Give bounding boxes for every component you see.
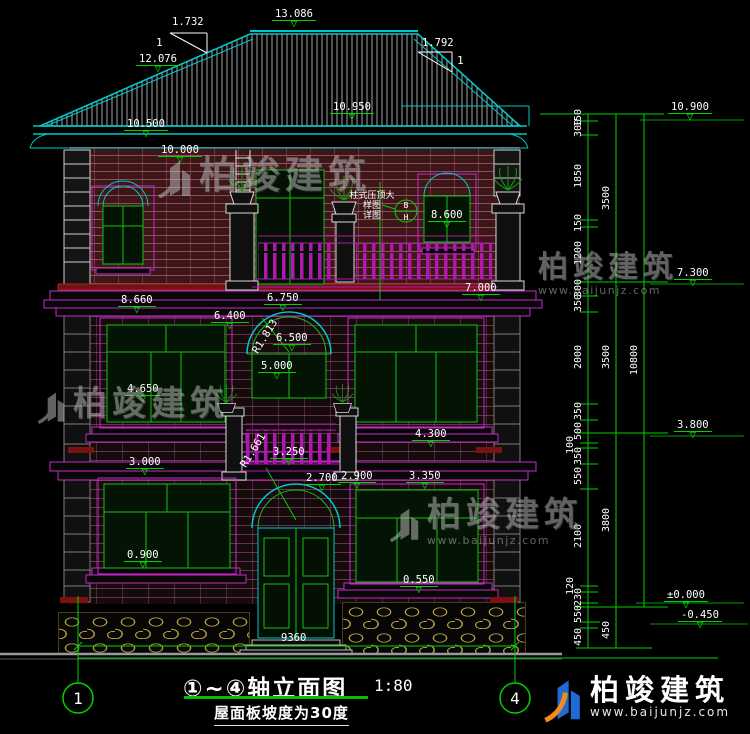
roof-slope-note: 屋面板坡度为30度 [214,702,349,726]
elevation-triangle-icon: ▽ [689,279,696,286]
elevation-triangle-icon: ▽ [139,561,146,568]
elevation-label: 8.660▽ [118,294,156,313]
elevation-triangle-icon: ▽ [285,458,292,465]
elevation-label: 10.950▽ [330,101,374,120]
elevation-label: 13.086▽ [272,8,316,27]
callout-sub: 详图 [348,211,396,221]
slope-ratio-left: 1 [156,36,163,49]
elevation-label: 2.700▽ [303,472,341,491]
elevation-triangle-icon: ▽ [683,601,690,608]
brand-footer: 柏竣建筑 www.baijunjz.com [542,672,730,722]
elevation-triangle-icon: ▽ [415,586,422,593]
svg-text:2000: 2000 [573,345,584,369]
elevation-label: 2.900▽ [338,470,376,489]
elevation-triangle-icon: ▽ [226,322,233,329]
slope-value-left: 1.732 [172,16,204,28]
elevation-label: 10.500▽ [124,118,168,137]
svg-text:450: 450 [573,628,584,646]
svg-text:550: 550 [573,605,584,623]
watermark: 柏竣建筑 [156,154,371,198]
watermark-logo-icon [156,154,192,198]
svg-text:10800: 10800 [629,345,640,375]
brand-name: 柏竣建筑 [590,675,730,705]
elevation-label: 3.000▽ [126,456,164,475]
elevation-label: 3.800▽ [674,419,712,438]
drawing-scale: 1:80 [374,676,413,695]
overall-width-dimension: 9360 [281,632,306,644]
svg-text:550: 550 [573,467,584,485]
elevation-label: 10.900▽ [668,101,712,120]
elevation-label: 12.076▽ [136,53,180,72]
callout-bottom-ref: H [404,213,409,222]
elevation-label: 3.250▽ [270,446,308,465]
slope-ratio-right: 1 [457,54,464,67]
elevation-label: 8.600▽ [428,209,466,228]
elevation-label: 7.300▽ [674,267,712,286]
svg-text:350: 350 [573,402,584,420]
watermark: 柏竣建筑 www.baijunjz.com [538,252,678,297]
elevation-label: 5.000▽ [258,360,296,379]
svg-text:350: 350 [573,447,584,465]
svg-text:1850: 1850 [573,164,584,188]
elevation-triangle-icon: ▽ [421,482,428,489]
elevation-label: -0.450▽ [678,609,722,628]
hip-roof [30,31,529,148]
axis-bubble-1: 1 [68,689,88,708]
elevation-triangle-icon: ▽ [291,20,298,27]
slope-value-right: 1.792 [422,37,454,49]
watermark-logo-icon [388,502,420,542]
elevation-label: 6.400▽ [211,310,249,329]
elevation-label: 6.500▽ [273,332,311,351]
watermark-logo-icon [36,386,66,424]
svg-text:450: 450 [601,621,612,639]
elevation-triangle-icon: ▽ [288,344,295,351]
brand-logo-icon [542,672,582,722]
cad-elevation-drawing: B H 150 300 1850 150 1 [0,0,750,734]
svg-text:350: 350 [573,294,584,312]
brand-url: www.baijunjz.com [590,705,730,719]
elevation-label: 6.750▽ [264,292,302,311]
svg-text:3800: 3800 [601,508,612,532]
elevation-label: 4.300▽ [412,428,450,447]
elevation-label: 7.000▽ [462,282,500,301]
elevation-triangle-icon: ▽ [133,306,140,313]
watermark: 柏竣建筑 www.baijunjz.com [388,498,583,547]
drawing-linework: B H 150 300 1850 150 1 [0,0,750,734]
elevation-triangle-icon: ▽ [443,221,450,228]
axis-bubble-4: 4 [505,689,525,708]
elevation-triangle-icon: ▽ [697,621,704,628]
elevation-triangle-icon: ▽ [353,482,360,489]
title-underline [184,696,368,699]
elevation-label: 0.550▽ [400,574,438,593]
svg-text:300: 300 [573,119,584,137]
elevation-triangle-icon: ▽ [687,113,694,120]
elevation-label: 3.350▽ [406,470,444,489]
elevation-label: ±0.000▽ [664,589,708,608]
elevation-triangle-icon: ▽ [279,304,286,311]
elevation-triangle-icon: ▽ [141,468,148,475]
elevation-triangle-icon: ▽ [155,65,162,72]
elevation-triangle-icon: ▽ [427,440,434,447]
elevation-triangle-icon: ▽ [143,130,150,137]
elevation-triangle-icon: ▽ [349,113,356,120]
elevation-triangle-icon: ▽ [273,372,280,379]
elevation-triangle-icon: ▽ [318,484,325,491]
svg-text:3500: 3500 [601,345,612,369]
callout-top-ref: B [404,201,409,210]
elevation-triangle-icon: ▽ [477,294,484,301]
elevation-triangle-icon: ▽ [689,431,696,438]
svg-text:3500: 3500 [601,186,612,210]
elevation-label: 0.900▽ [124,549,162,568]
svg-text:150: 150 [573,214,584,232]
svg-text:230: 230 [573,588,584,606]
watermark: 柏竣建筑 [36,386,229,424]
